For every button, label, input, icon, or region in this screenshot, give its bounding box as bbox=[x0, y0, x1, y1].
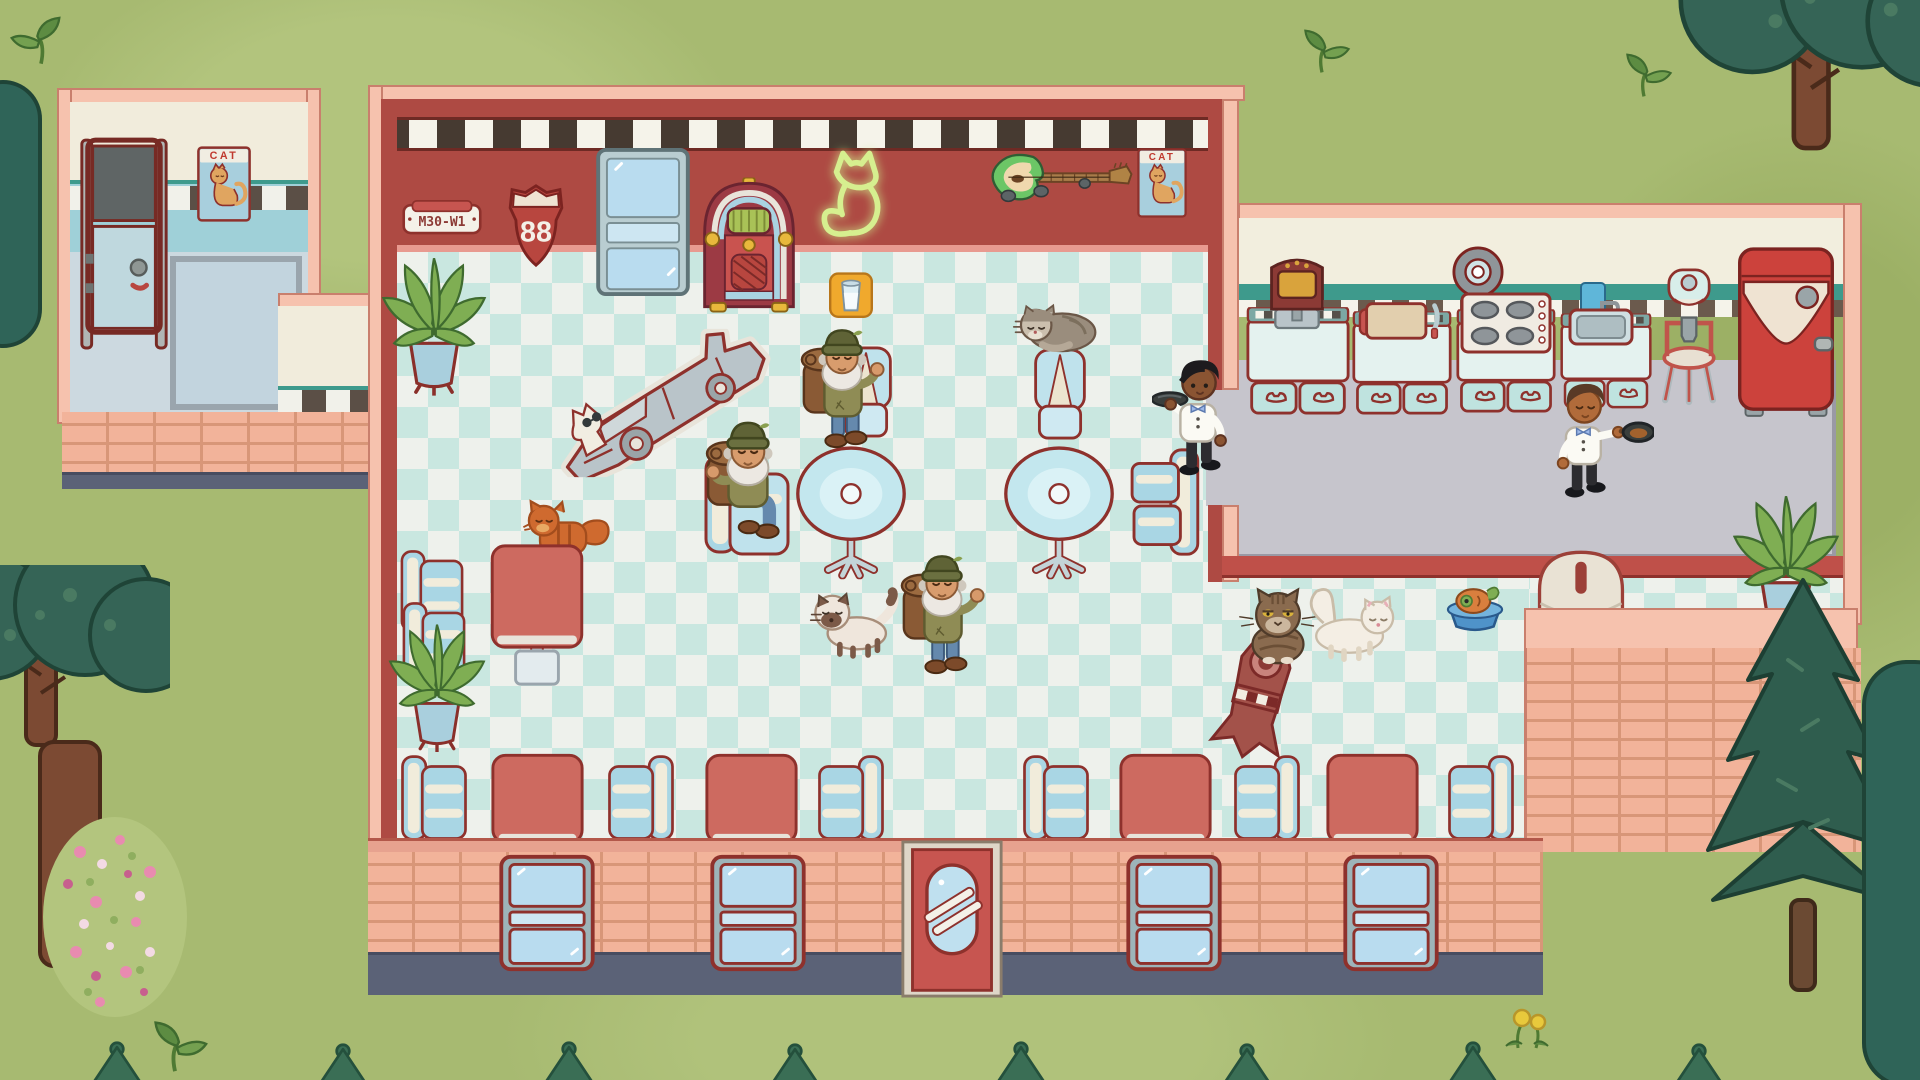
divider-wall-lower bbox=[1208, 505, 1223, 582]
divider-wall-upper bbox=[1208, 99, 1223, 390]
cone-bush bbox=[762, 1042, 828, 1080]
route-shield-text: 88 bbox=[520, 216, 552, 248]
electric-guitar-decor bbox=[985, 152, 1133, 204]
refrigerator[interactable] bbox=[1732, 242, 1840, 422]
bush-left-edge bbox=[0, 80, 42, 348]
jukebox[interactable] bbox=[695, 177, 803, 313]
booth-seat[interactable] bbox=[605, 750, 677, 846]
route-shield-sign: 88 bbox=[505, 182, 567, 270]
waffle-press-icon[interactable] bbox=[1264, 254, 1330, 336]
sprout bbox=[8, 8, 74, 68]
hiker-walking[interactable] bbox=[898, 548, 986, 678]
bush-right-edge bbox=[1862, 660, 1920, 1080]
divider-trim-upper bbox=[1222, 99, 1239, 390]
gray-cat[interactable] bbox=[1012, 298, 1098, 354]
cat-poster-text: CAT bbox=[210, 150, 239, 162]
cutting-board-icon[interactable] bbox=[1358, 298, 1446, 342]
kitchen-wall-right-trim bbox=[1843, 203, 1862, 625]
kitchen-counter-press[interactable] bbox=[1246, 306, 1350, 418]
sprout bbox=[140, 1012, 210, 1076]
cone-bush bbox=[310, 1042, 376, 1080]
booth-table[interactable] bbox=[1324, 752, 1421, 846]
game-viewport: CAT M30-W1 88 CAT bbox=[0, 0, 1920, 1080]
hiker-sitting[interactable] bbox=[704, 412, 796, 540]
backroom-cat-poster: CAT bbox=[196, 146, 252, 222]
booth-table[interactable] bbox=[703, 752, 800, 846]
booth-seat[interactable] bbox=[1445, 750, 1517, 846]
tree-top-right bbox=[1660, 0, 1920, 160]
kitchen-counter-board[interactable] bbox=[1352, 310, 1452, 418]
sink-icon[interactable] bbox=[1564, 298, 1644, 350]
neon-cat-sign bbox=[812, 143, 890, 241]
milkshake-machine[interactable] bbox=[1656, 262, 1722, 408]
backroom-wall-right bbox=[306, 88, 321, 300]
cone-bush bbox=[1214, 1042, 1280, 1080]
diner-chair[interactable] bbox=[1030, 344, 1090, 444]
flower-meadow bbox=[40, 812, 190, 1022]
booth-seat[interactable] bbox=[398, 750, 470, 846]
booth-seat[interactable] bbox=[1020, 750, 1092, 846]
cook[interactable] bbox=[1536, 370, 1654, 506]
front-window-2 bbox=[708, 853, 808, 973]
front-door[interactable] bbox=[899, 840, 1005, 998]
booth-seat[interactable] bbox=[815, 750, 887, 846]
hiker-standing[interactable] bbox=[798, 322, 886, 452]
palm-plant-top-left[interactable] bbox=[378, 236, 490, 400]
order-bubble-milk[interactable] bbox=[828, 272, 874, 320]
tree-bottom-left bbox=[0, 560, 170, 760]
front-window-1 bbox=[497, 853, 597, 973]
palm-plant-mid-left[interactable] bbox=[384, 608, 490, 752]
diner-wall-checker-band bbox=[381, 117, 1231, 151]
cone-bush bbox=[988, 1040, 1054, 1080]
server[interactable] bbox=[1152, 348, 1246, 486]
annex-baseboard bbox=[62, 472, 392, 489]
front-window-4 bbox=[1341, 853, 1441, 973]
front-window-3 bbox=[1124, 853, 1224, 973]
diner-cat-poster: CAT bbox=[1136, 148, 1188, 218]
cone-bush bbox=[84, 1040, 150, 1080]
cat-food-bowl[interactable] bbox=[1442, 578, 1508, 636]
license-plate: M30-W1 bbox=[402, 198, 482, 235]
square-red-table[interactable] bbox=[488, 542, 586, 688]
sprout bbox=[1292, 22, 1352, 76]
booth-table[interactable] bbox=[1117, 752, 1214, 846]
round-table-2[interactable] bbox=[1002, 434, 1116, 580]
back-door[interactable] bbox=[74, 136, 174, 358]
wall-clock bbox=[1452, 246, 1504, 298]
stove-icon[interactable] bbox=[1460, 292, 1552, 354]
siamese-cat[interactable] bbox=[806, 586, 900, 660]
cone-bush bbox=[536, 1040, 602, 1080]
round-table-1[interactable] bbox=[794, 434, 908, 580]
cat-poster-text: CAT bbox=[1149, 152, 1175, 163]
wall-window bbox=[594, 146, 692, 298]
cone-bush bbox=[1440, 1040, 1506, 1080]
annex-brick-wall bbox=[62, 412, 392, 480]
sprout bbox=[1614, 46, 1674, 100]
license-plate-text: M30-W1 bbox=[418, 215, 465, 230]
white-cat[interactable] bbox=[1292, 586, 1396, 662]
booth-table[interactable] bbox=[489, 752, 586, 846]
cone-bush bbox=[1666, 1042, 1732, 1080]
